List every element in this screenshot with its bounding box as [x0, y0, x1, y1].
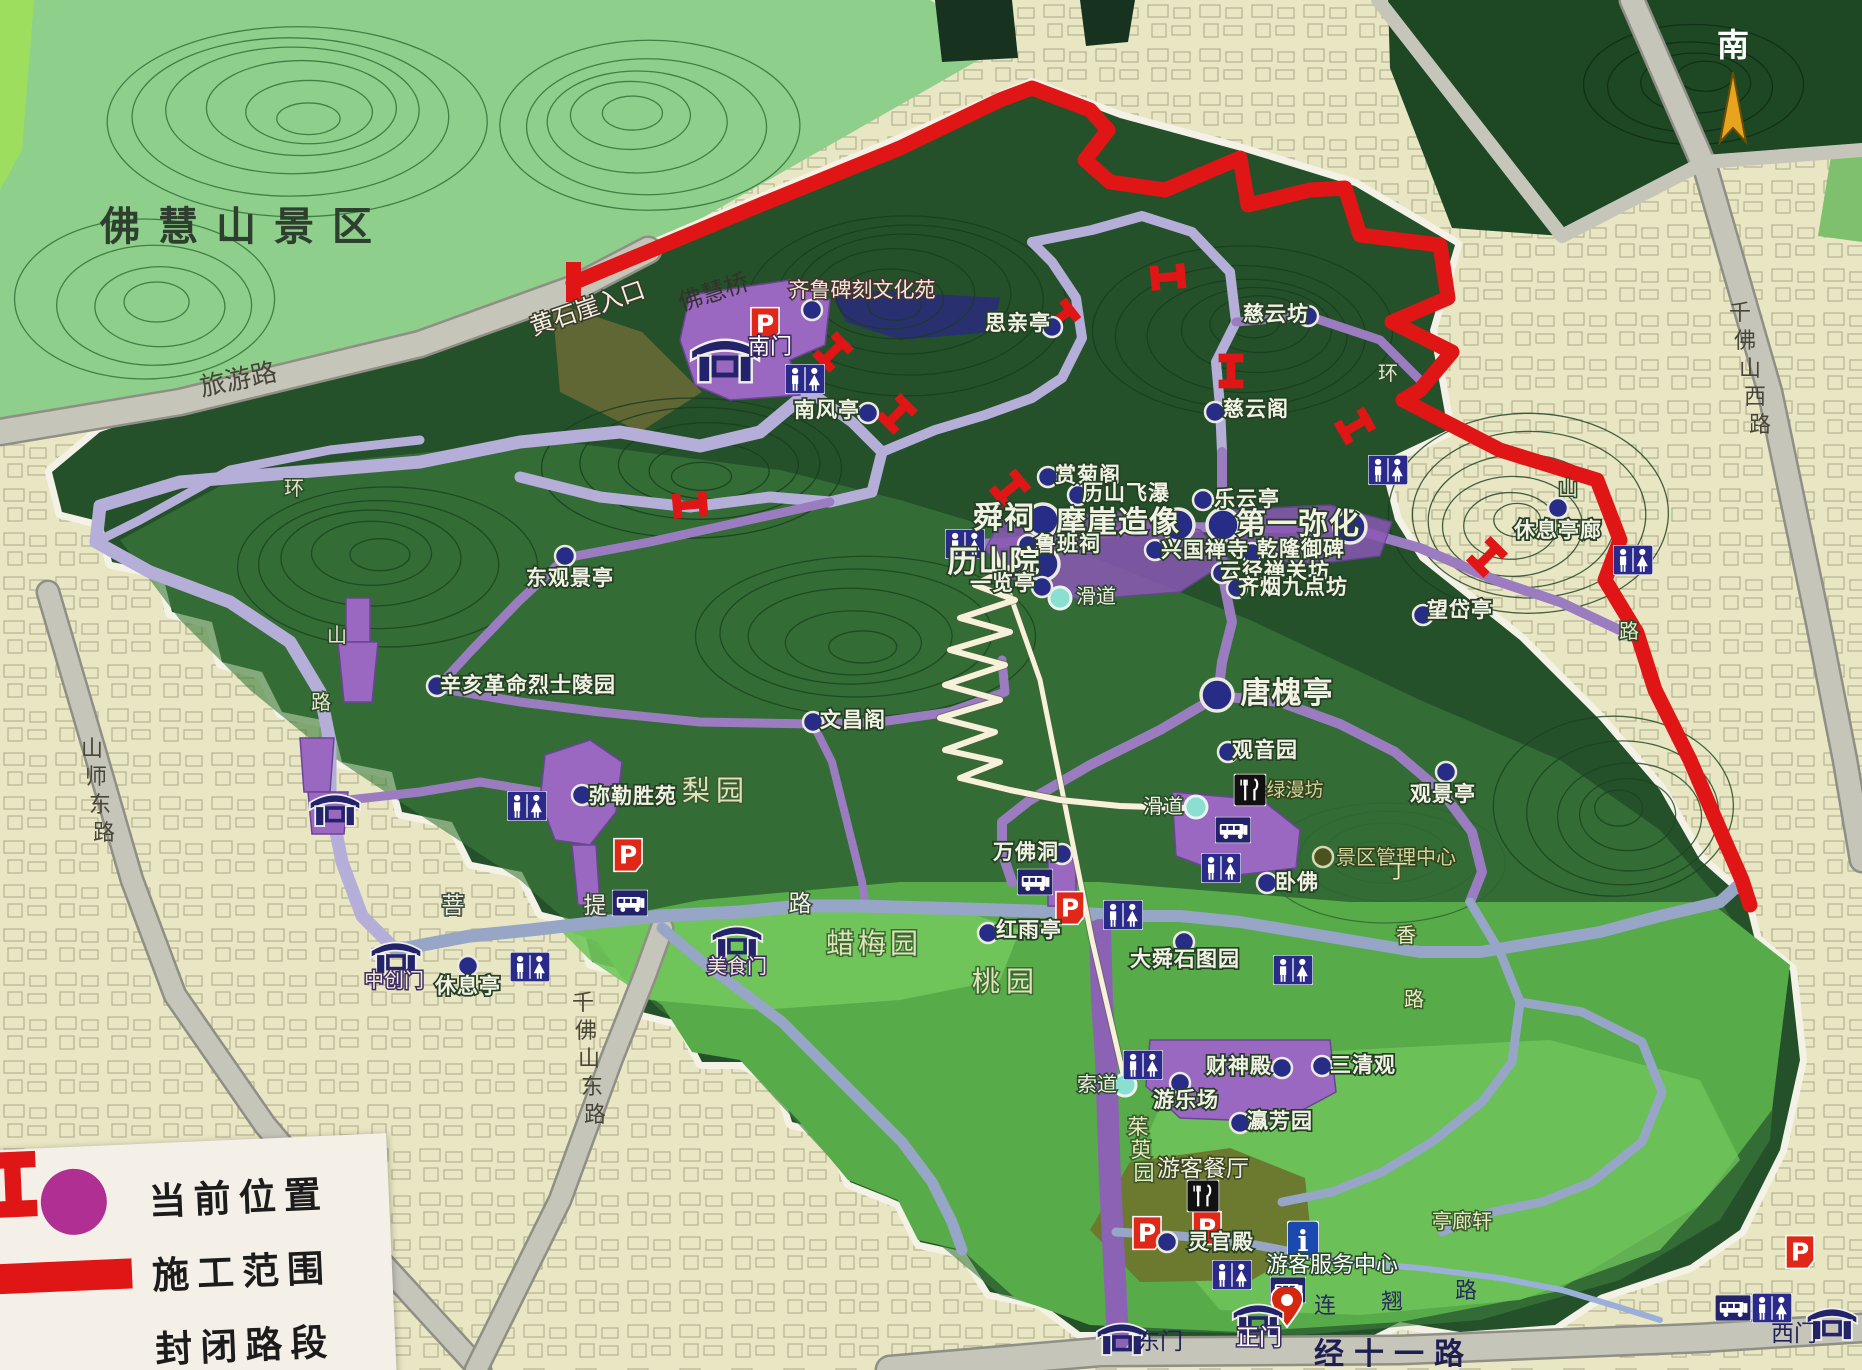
parking-icon[interactable]	[614, 839, 642, 872]
slide-bottom-station[interactable]	[1185, 796, 1207, 818]
poi-label: 观音园	[1232, 738, 1298, 762]
poi-label: 历山飞瀑	[1082, 481, 1170, 505]
poi-dot[interactable]	[1207, 509, 1239, 541]
map-label: 山	[327, 623, 347, 647]
map-label: 正门	[1236, 1325, 1282, 1351]
map-label: 路	[789, 891, 812, 917]
map-label: 香	[1396, 923, 1416, 947]
map-label: 路	[1619, 619, 1639, 643]
poi-label: 大舜石图园	[1130, 947, 1240, 971]
map-label: 山	[1558, 476, 1578, 500]
poi-dot[interactable]	[1205, 402, 1225, 422]
map-label: 南门	[748, 335, 792, 360]
poi-label: 南风亭	[794, 398, 860, 422]
poi-label: 卧佛	[1275, 870, 1319, 894]
poi-label: 慈云阁	[1223, 397, 1289, 421]
poi-dot[interactable]	[802, 300, 822, 320]
map-label: 佛	[575, 1019, 597, 1044]
map-label: 蜡梅园	[826, 927, 922, 960]
poi-label: 东观景亭	[526, 566, 614, 590]
legend-card: 当前位置 施工范围 封闭路段	[0, 1133, 397, 1370]
map-label: 美食门	[707, 954, 767, 978]
wc-icon[interactable]	[785, 364, 825, 394]
poi-label: 慈云坊	[1243, 302, 1309, 326]
poi-label: 弥勒胜苑	[589, 784, 677, 808]
wc-icon[interactable]	[510, 952, 550, 982]
poi-dot[interactable]	[858, 403, 878, 423]
map-label: 路	[584, 1103, 606, 1128]
dark-block-b	[1080, 0, 1135, 46]
map-label: 山	[1739, 357, 1761, 382]
map-label: 梨园	[682, 774, 750, 807]
map-label: 东门	[1137, 1329, 1183, 1355]
map-label: 茱	[1128, 1115, 1149, 1139]
map-label: 山	[578, 1047, 600, 1072]
wc-icon[interactable]	[1752, 1293, 1792, 1323]
poi-dot[interactable]	[1201, 679, 1233, 711]
map-label: 滑道	[1143, 794, 1183, 818]
poi-label: 乾隆御碑	[1257, 537, 1345, 561]
poi-label: 财神殿	[1206, 1054, 1272, 1078]
poi-label: 灵官殿	[1188, 1230, 1254, 1254]
poi-dot[interactable]	[1193, 490, 1213, 510]
poi-label: 唐槐亭	[1241, 676, 1334, 711]
map-label: 千	[1729, 301, 1751, 326]
wc-icon[interactable]	[1212, 1260, 1252, 1290]
poi-label: 望岱亭	[1427, 598, 1493, 622]
poi-label: 红雨亭	[996, 918, 1062, 942]
poi-label: 瀛芳园	[1247, 1109, 1313, 1133]
poi-label: 休息亭廊	[1513, 518, 1602, 542]
map-label: 翘	[1381, 1290, 1403, 1315]
map-label: 丁	[1388, 859, 1408, 883]
poi-dot[interactable]	[555, 546, 575, 566]
wc-icon[interactable]	[1123, 1050, 1163, 1080]
wc-icon[interactable]	[1613, 545, 1653, 575]
poi-label: 齐烟九点坊	[1238, 575, 1348, 599]
closed-road-symbol	[0, 1148, 50, 1221]
map-label: 提	[584, 893, 607, 919]
west-tower-a	[300, 738, 334, 792]
map-label: 连	[1314, 1294, 1336, 1319]
map-label: 西门	[1771, 1321, 1817, 1347]
bus-icon[interactable]	[1715, 1295, 1751, 1321]
poi-dot[interactable]	[1157, 1232, 1177, 1252]
management-center-dot[interactable]	[1313, 847, 1333, 867]
legend-label: 当前位置	[148, 1164, 330, 1226]
park-map: P i	[0, 0, 1862, 1370]
poi-dot[interactable]	[1272, 1058, 1292, 1078]
poi-dot[interactable]	[1436, 762, 1456, 782]
bus-icon[interactable]	[612, 890, 648, 916]
map-label: 菩	[442, 893, 465, 919]
poi-label: 万佛洞	[992, 840, 1059, 864]
legend-label: 封闭路段	[154, 1312, 336, 1370]
map-label: 师	[85, 765, 107, 790]
wc-icon[interactable]	[1103, 900, 1143, 930]
food-icon[interactable]	[1187, 1180, 1220, 1213]
map-label: 园	[1134, 1161, 1155, 1185]
lieshi-tower-a	[346, 598, 370, 642]
compass-south-label: 南	[1717, 26, 1749, 64]
map-label: 千	[572, 991, 594, 1016]
poi-label: 观景亭	[1410, 782, 1476, 806]
map-label: 路	[93, 821, 115, 846]
map-label: 佛慧山景区	[99, 204, 390, 250]
poi-dot[interactable]	[978, 923, 998, 943]
poi-label: 辛亥革命烈士陵园	[440, 673, 616, 697]
map-label: 绿漫坊	[1266, 779, 1323, 801]
map-label: 中创门	[364, 968, 424, 992]
legend-label: 施工范围	[151, 1238, 333, 1300]
map-label: 索道	[1077, 1072, 1117, 1096]
map-label: 齐鲁碑刻文化苑	[789, 278, 936, 302]
current-position-symbol	[39, 1167, 108, 1236]
wc-icon[interactable]	[1368, 455, 1408, 485]
poi-label: 舜祠	[973, 501, 1035, 536]
parking-icon[interactable]	[1786, 1236, 1814, 1269]
map-label: 东	[581, 1075, 603, 1100]
food-icon[interactable]	[1234, 774, 1267, 807]
map-label: 萸	[1131, 1138, 1152, 1162]
map-label: 滑道	[1076, 584, 1116, 608]
map-label: 山	[81, 737, 103, 762]
map-label: 经十一路	[1314, 1337, 1474, 1370]
map-label: 亭廊轩	[1432, 1209, 1492, 1233]
map-label: 环	[284, 476, 304, 500]
map-label: 西	[1744, 385, 1766, 410]
poi-label: 思亲亭	[985, 311, 1051, 335]
poi-label: 三清观	[1330, 1053, 1396, 1077]
map-label: 桃园	[972, 965, 1040, 998]
dark-block-a	[935, 0, 1018, 62]
poi-label: 文昌阁	[820, 708, 886, 732]
poi-dot[interactable]	[1312, 1056, 1332, 1076]
poi-dot[interactable]	[458, 956, 478, 976]
poi-label: 游乐场	[1153, 1088, 1219, 1112]
map-label: 路	[1455, 1279, 1477, 1304]
map-label: 游客服务中心	[1266, 1253, 1398, 1278]
construction-area-symbol	[0, 1258, 133, 1295]
poi-label: 一览亭	[970, 571, 1036, 595]
bus-icon[interactable]	[1215, 817, 1251, 843]
wc-icon[interactable]	[507, 791, 547, 821]
map-label: 路	[1404, 987, 1424, 1011]
wc-icon[interactable]	[1273, 955, 1313, 985]
poi-label: 休息亭	[434, 974, 501, 998]
map-label: 佛	[1734, 329, 1756, 354]
wc-icon[interactable]	[1201, 853, 1241, 883]
map-label: 路	[1749, 413, 1771, 438]
poi-label: 鲁班祠	[1035, 532, 1101, 556]
map-label: 东	[89, 793, 111, 818]
poi-dot[interactable]	[1257, 873, 1277, 893]
bus-icon[interactable]	[1017, 869, 1053, 895]
map-label: 游客餐厅	[1157, 1156, 1249, 1182]
map-label: 环	[1378, 361, 1398, 385]
lieshi-tower-b	[338, 642, 378, 702]
map-label: 路	[311, 690, 331, 714]
poi-dot[interactable]	[1548, 498, 1568, 518]
